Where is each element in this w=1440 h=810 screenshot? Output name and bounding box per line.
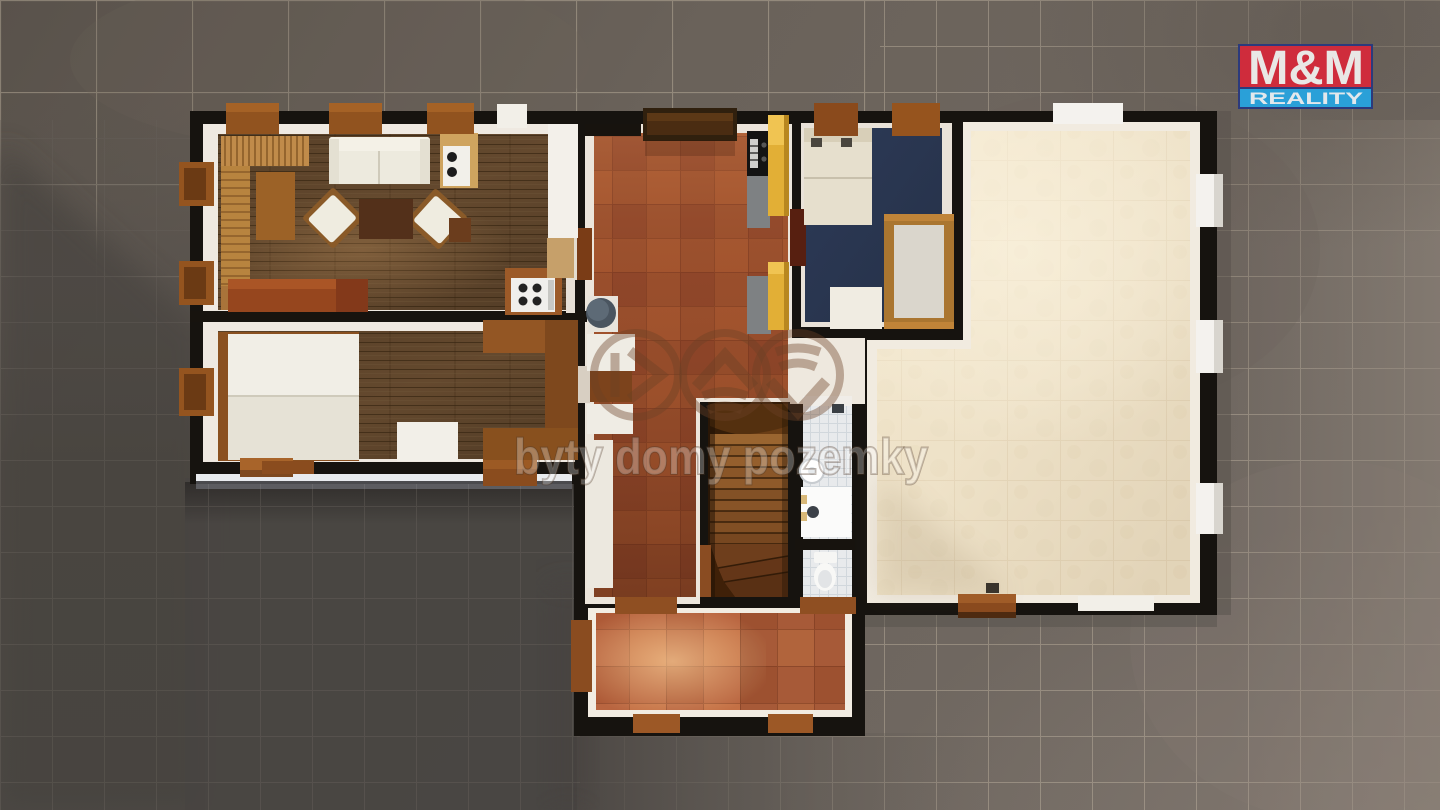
svg-text:REALITY: REALITY	[1249, 90, 1363, 108]
svg-text:byty domy pozemky: byty domy pozemky	[514, 429, 928, 485]
